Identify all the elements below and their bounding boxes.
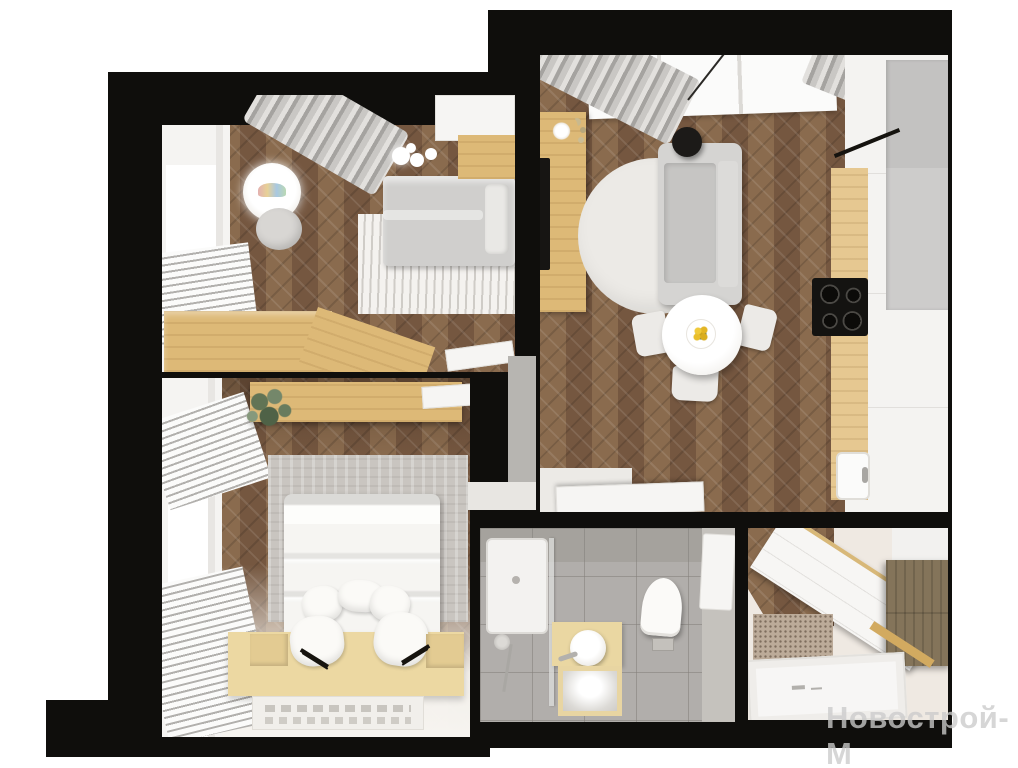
entrance-door-handle <box>792 685 805 690</box>
floor-plan-render: Новострой-М <box>0 0 1018 768</box>
living-sofa-seat <box>664 163 716 283</box>
vessel-sink <box>570 630 606 666</box>
bathroom <box>480 528 735 722</box>
floor-drain <box>652 638 674 651</box>
pendant-lamp <box>672 127 702 157</box>
hand-shower-head <box>494 634 510 650</box>
hallway <box>748 528 948 720</box>
shower-drain-dot <box>512 576 520 584</box>
kids-bed-blanket-fold <box>383 210 483 220</box>
mirror-counter-reflection <box>558 666 622 716</box>
living-open-door <box>556 481 705 512</box>
bedroom <box>162 378 470 737</box>
bedroom-plant <box>240 382 296 434</box>
bathroom-door-leaf <box>699 533 735 611</box>
nightstand-right <box>426 634 464 668</box>
rug-text-row-1 <box>265 705 411 712</box>
flower-centerpiece <box>691 324 711 344</box>
living-sofa-backrest <box>718 161 738 287</box>
kids-lamp-toy <box>258 183 286 197</box>
kitchen-tall-cabinet <box>886 60 948 310</box>
living-tv <box>540 158 550 270</box>
living-kitchen <box>540 55 948 512</box>
kitchen-cooktop <box>812 278 868 336</box>
rug-text-row-2 <box>265 717 411 724</box>
shower-tray <box>486 538 548 634</box>
living-plant-vase <box>548 113 578 143</box>
kids-pouf <box>256 208 302 250</box>
nook-floor <box>468 482 536 510</box>
living-sofa <box>658 143 742 305</box>
nightstand-left <box>250 634 288 666</box>
hallway-wall-top-right <box>892 528 948 560</box>
kitchen-faucet <box>862 467 868 483</box>
kids-room <box>162 95 515 372</box>
kids-wardrobe-shelf <box>458 135 515 179</box>
kids-ceiling-light <box>392 147 410 165</box>
kids-bed-pillow <box>485 184 509 254</box>
watermark: Новострой-М <box>826 700 1018 768</box>
kids-bed <box>383 176 515 266</box>
wall-foot-bottom-left <box>46 700 162 757</box>
bedroom-text-rug <box>252 696 424 730</box>
